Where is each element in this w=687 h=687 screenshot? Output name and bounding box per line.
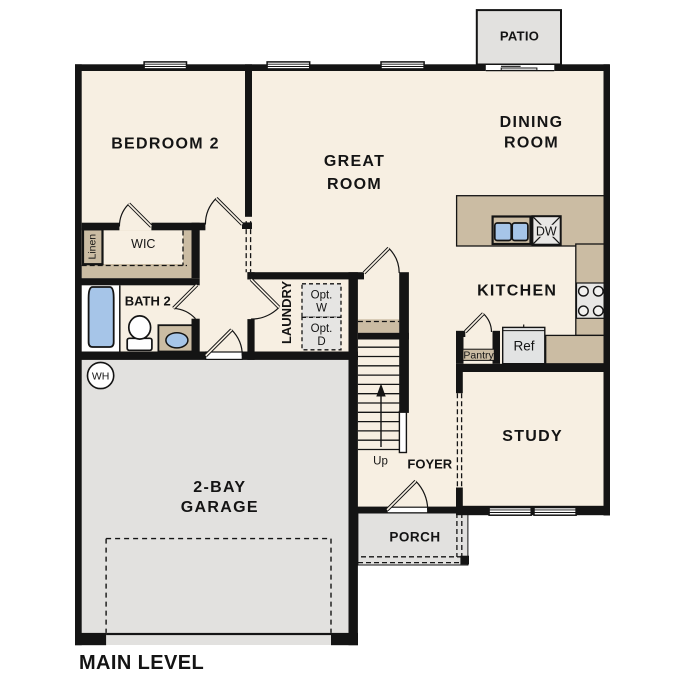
svg-text:MAIN LEVEL: MAIN LEVEL (79, 652, 204, 674)
svg-text:GREAT: GREAT (324, 153, 385, 170)
svg-text:BATH 2: BATH 2 (125, 293, 171, 308)
svg-text:BEDROOM 2: BEDROOM 2 (111, 136, 220, 153)
svg-text:PATIO: PATIO (500, 29, 539, 44)
svg-text:DW: DW (536, 224, 557, 238)
svg-text:Opt.: Opt. (311, 290, 333, 302)
svg-text:ROOM: ROOM (327, 176, 382, 193)
svg-text:STUDY: STUDY (502, 428, 563, 445)
svg-text:2-BAY: 2-BAY (193, 479, 246, 496)
svg-text:WH: WH (92, 370, 110, 382)
svg-text:GARAGE: GARAGE (181, 499, 259, 516)
svg-text:WIC: WIC (131, 237, 155, 251)
svg-text:Up: Up (373, 456, 388, 468)
svg-text:FOYER: FOYER (407, 456, 452, 471)
svg-text:DINING: DINING (500, 114, 564, 131)
svg-text:Linen: Linen (87, 234, 99, 260)
svg-text:W: W (316, 303, 327, 315)
svg-text:ROOM: ROOM (504, 134, 559, 151)
svg-text:LAUNDRY: LAUNDRY (279, 281, 294, 344)
svg-text:Opt.: Opt. (311, 323, 333, 335)
svg-text:Ref: Ref (513, 339, 534, 354)
svg-text:Pantry: Pantry (463, 349, 494, 361)
svg-text:D: D (317, 336, 325, 348)
svg-text:KITCHEN: KITCHEN (477, 283, 557, 300)
svg-text:PORCH: PORCH (389, 530, 440, 545)
